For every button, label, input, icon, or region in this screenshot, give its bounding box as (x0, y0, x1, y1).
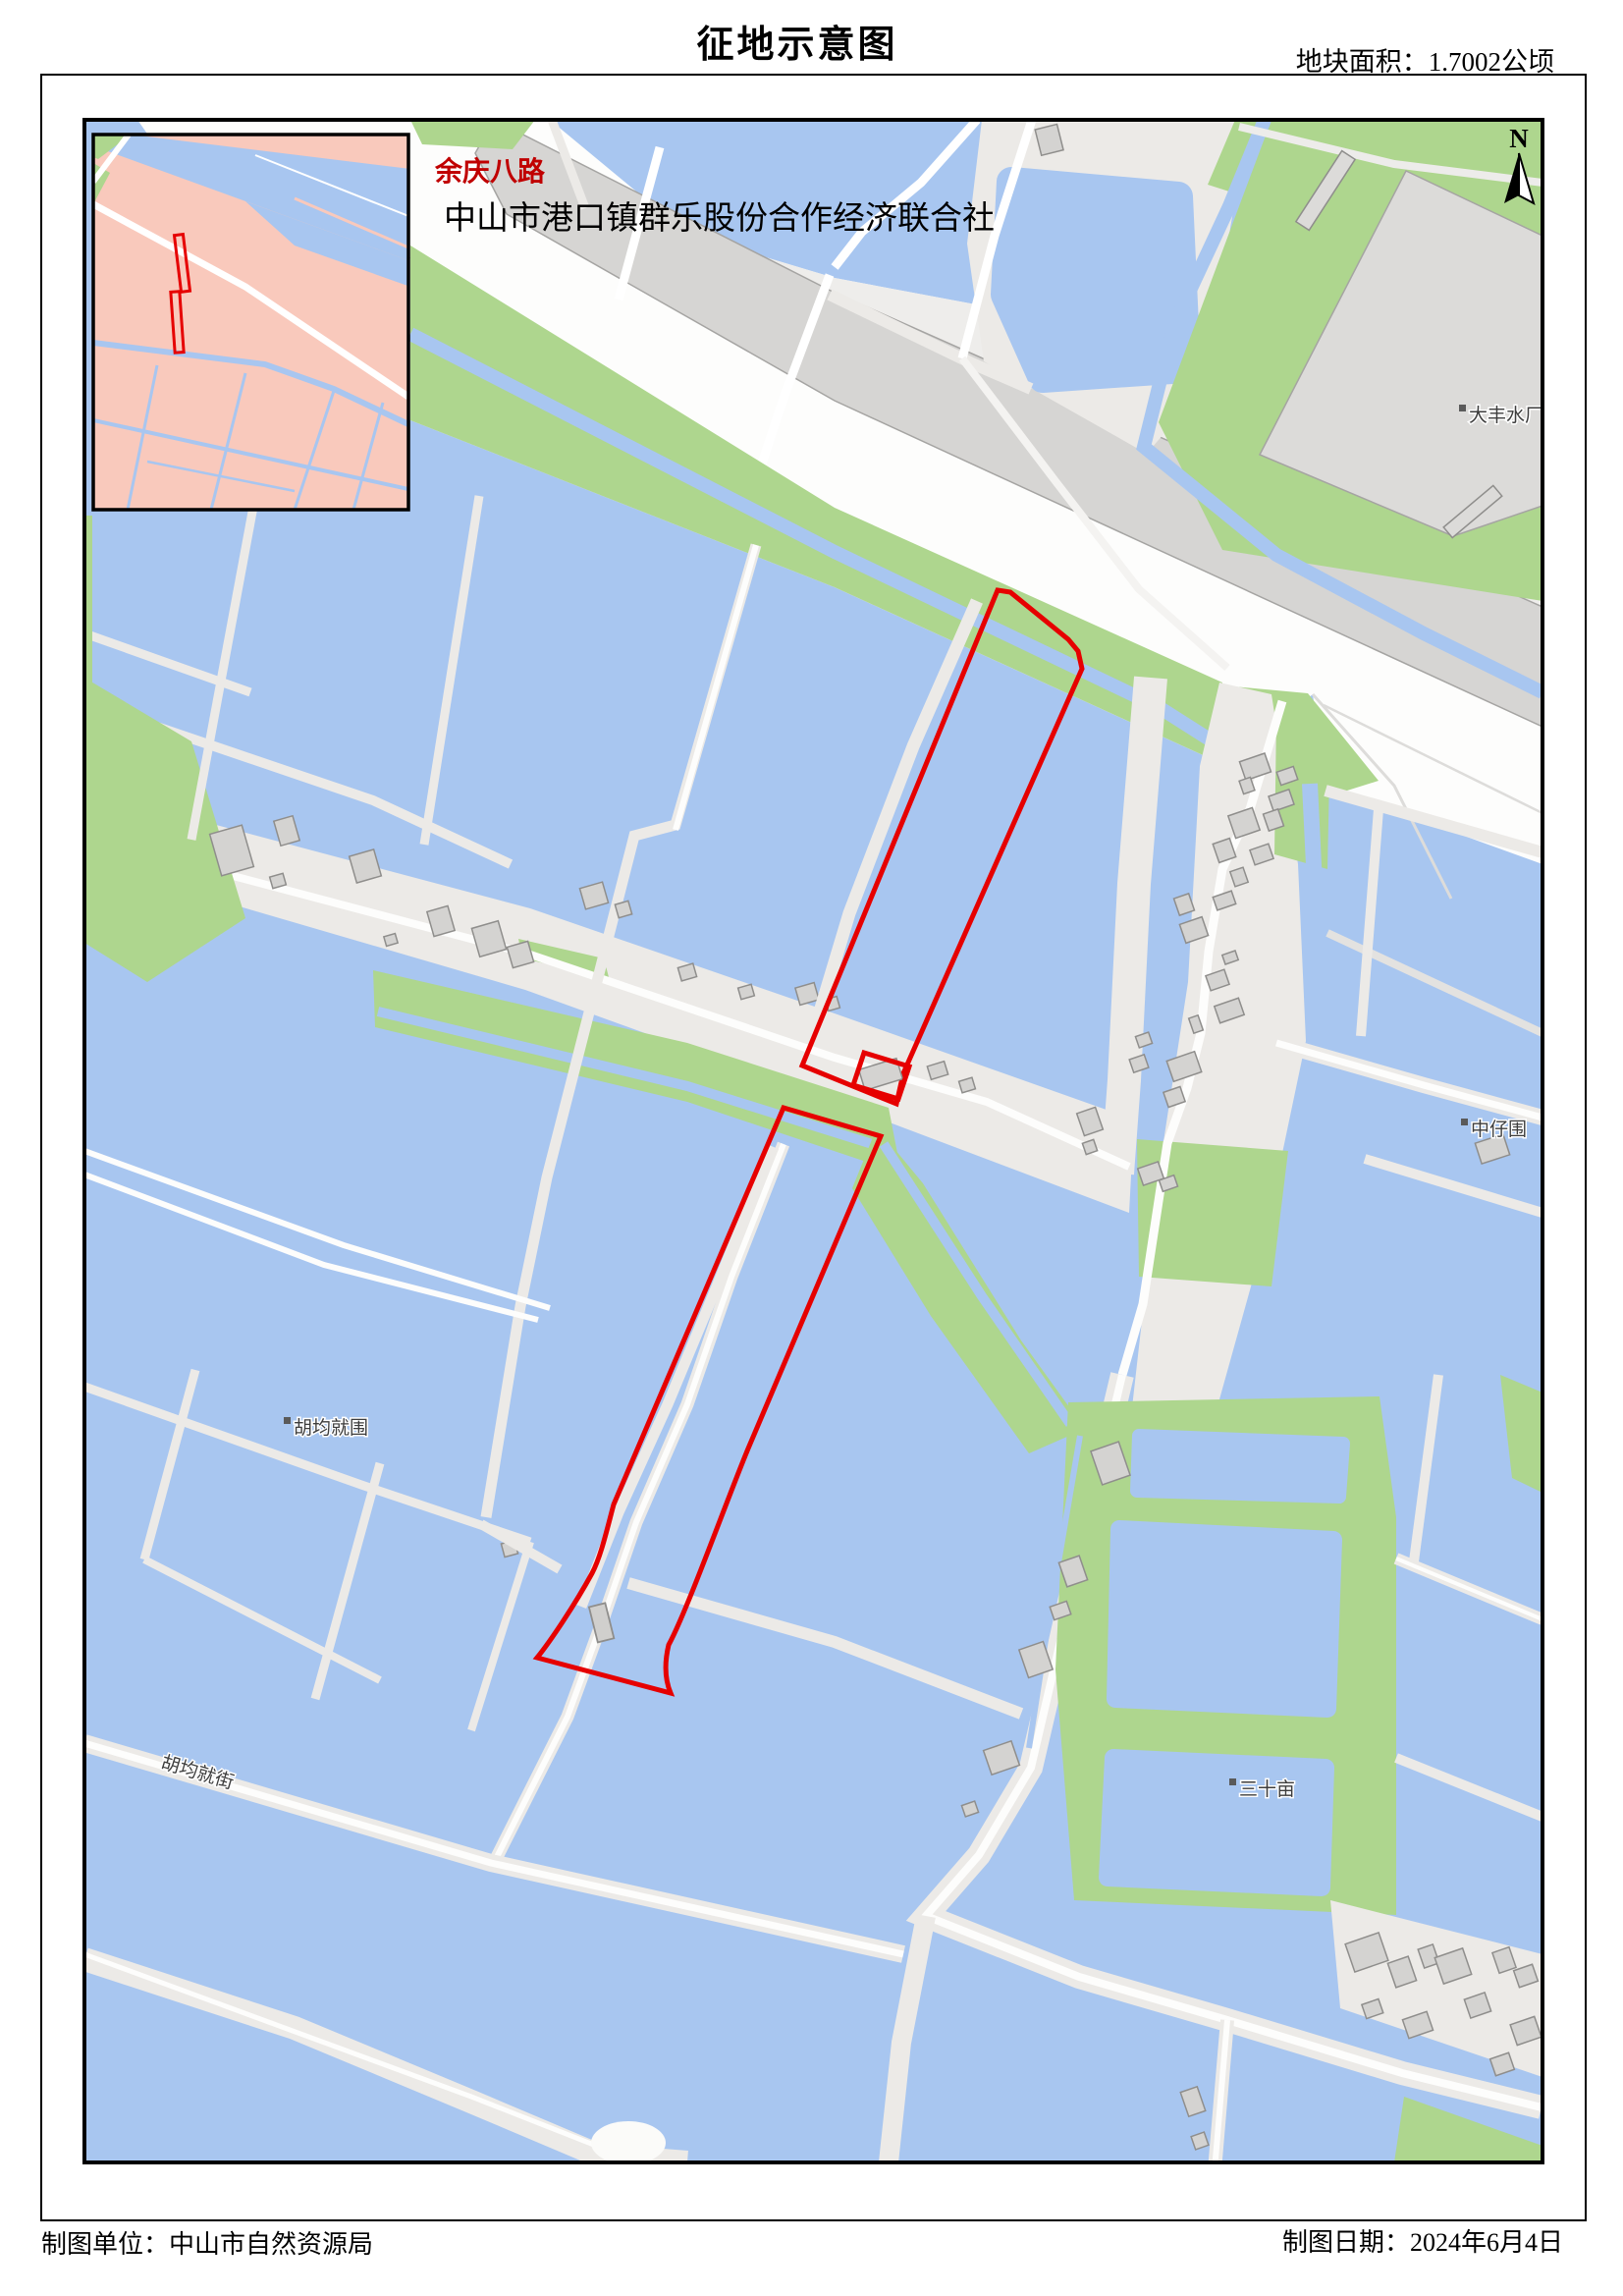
svg-text:胡均就围: 胡均就围 (294, 1417, 368, 1439)
svg-text:余庆八路: 余庆八路 (434, 155, 546, 188)
svg-text:大丰水厂: 大丰水厂 (1469, 405, 1543, 426)
svg-text:制图单位：中山市自然资源局: 制图单位：中山市自然资源局 (41, 2230, 373, 2259)
svg-text:N: N (1509, 124, 1529, 153)
svg-text:中山市港口镇群乐股份合作经济联合社: 中山市港口镇群乐股份合作经济联合社 (444, 200, 995, 237)
svg-text:中仔围: 中仔围 (1471, 1119, 1527, 1140)
svg-text:制图日期：2024年6月4日: 制图日期：2024年6月4日 (1282, 2228, 1563, 2257)
svg-text:征地示意图: 征地示意图 (696, 25, 897, 66)
svg-text:三十亩: 三十亩 (1239, 1778, 1295, 1800)
svg-text:地块面积：1.7002公顷: 地块面积：1.7002公顷 (1296, 47, 1554, 77)
